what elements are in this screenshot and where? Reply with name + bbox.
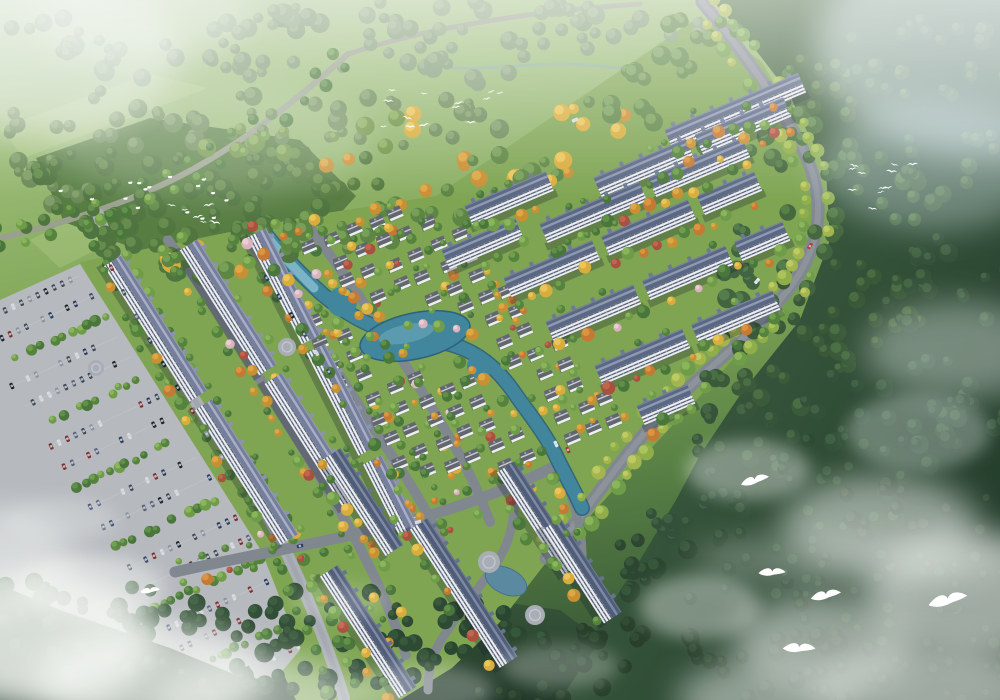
plaza [278,338,296,356]
scene-canvas [0,0,1000,700]
mist-patch [502,644,618,688]
atmospheric-haze [0,0,1000,200]
mist-patch [686,440,810,500]
mist-patch [640,575,760,639]
mist-patch [4,498,116,542]
mist-patch [846,394,990,470]
plaza [525,605,545,625]
layer-haze [0,0,1000,200]
plaza [478,551,500,573]
mist-patch [288,584,388,620]
aerial-render [0,0,1000,700]
mist-patch [692,534,1000,586]
plaza [88,360,104,376]
mist-patch [20,554,164,622]
